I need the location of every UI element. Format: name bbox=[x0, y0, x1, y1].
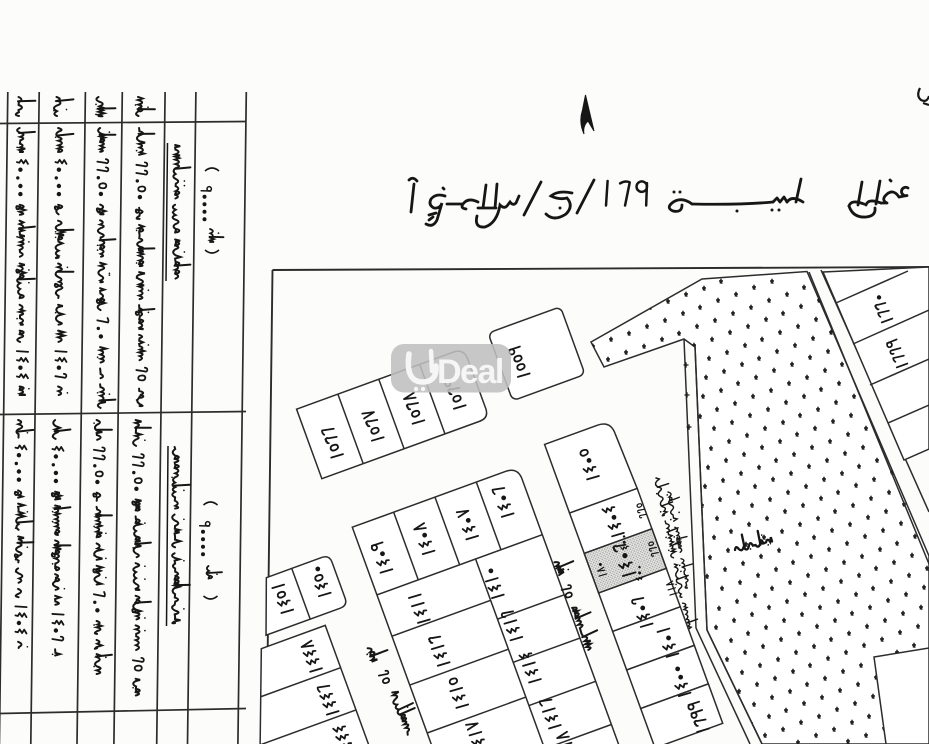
svg-text:Deal: Deal bbox=[437, 353, 503, 391]
